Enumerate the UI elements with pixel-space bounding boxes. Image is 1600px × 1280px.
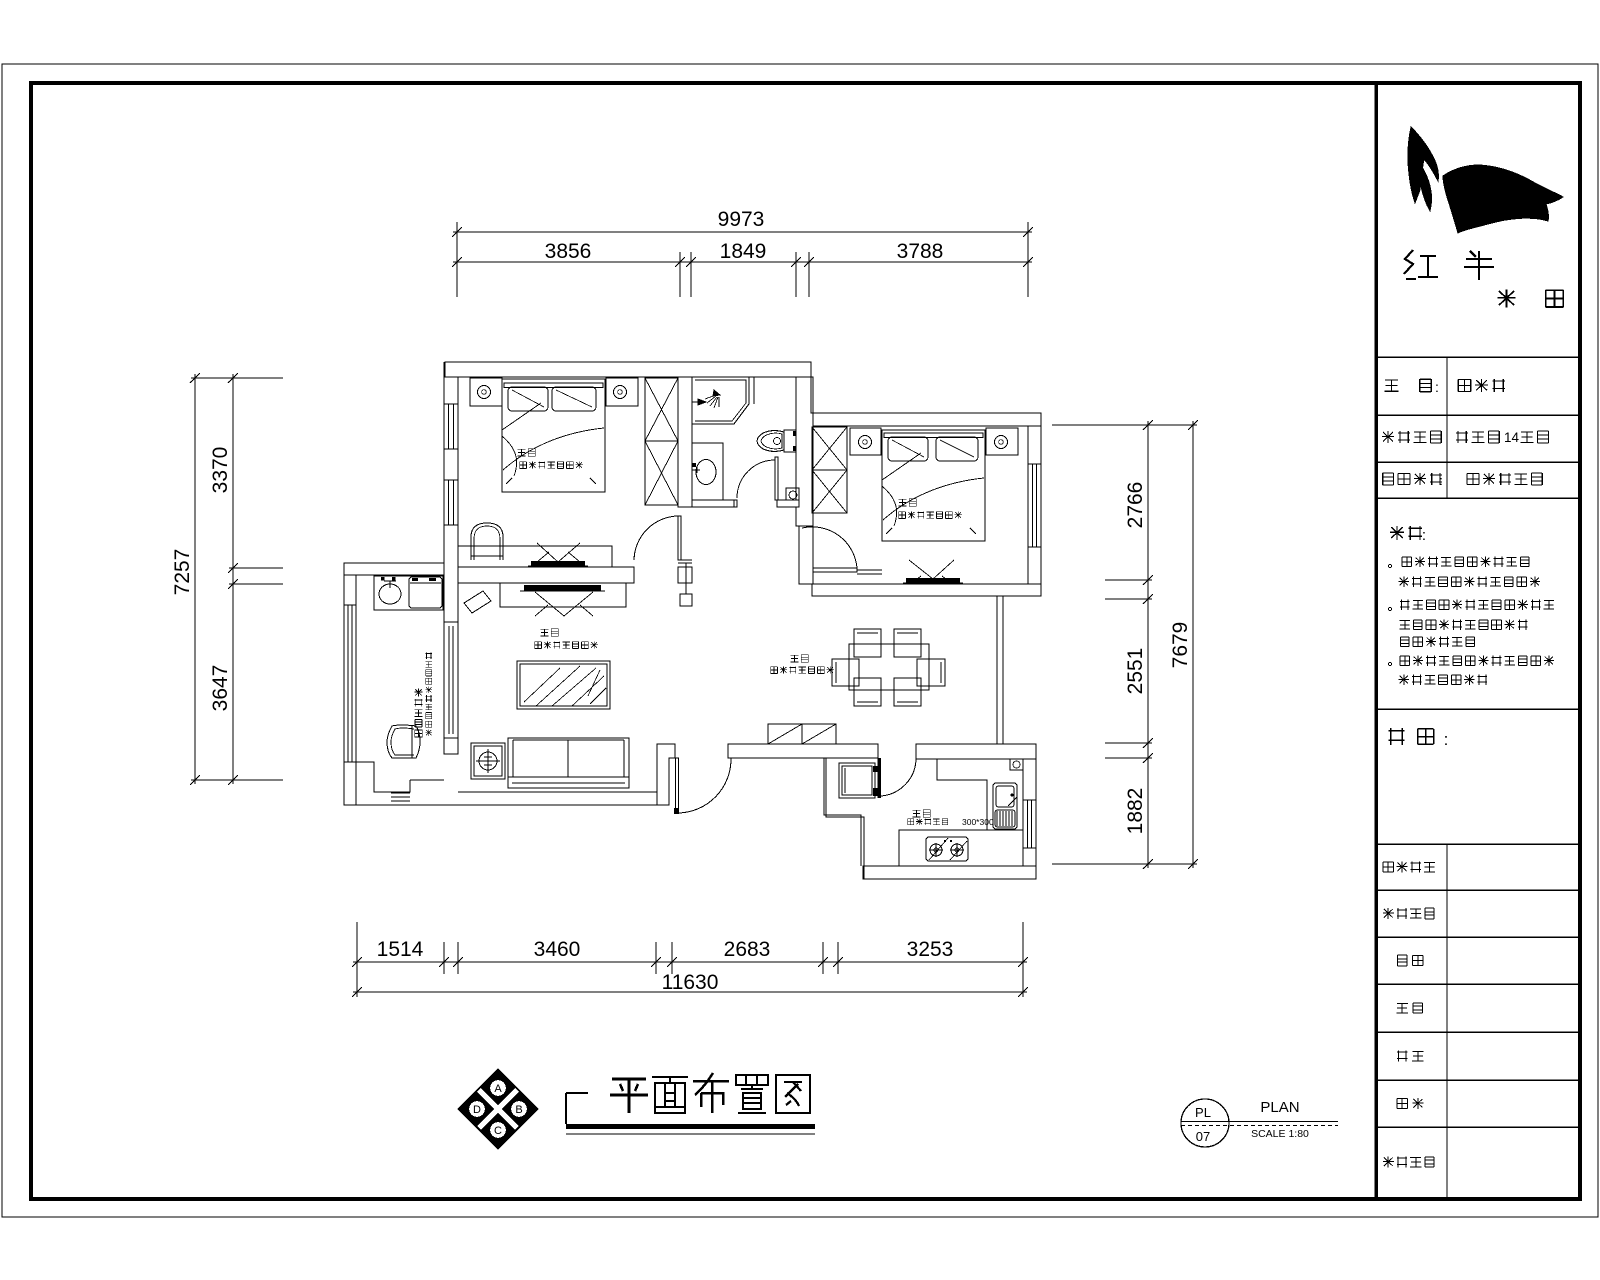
svg-text:7679: 7679 [1169, 622, 1192, 669]
svg-text:2683: 2683 [724, 938, 771, 961]
svg-text:1514: 1514 [377, 938, 424, 961]
svg-text:D: D [473, 1104, 481, 1116]
svg-text::: : [1435, 379, 1439, 395]
svg-text:B: B [515, 1104, 522, 1116]
svg-text:14: 14 [1504, 430, 1520, 445]
svg-text:300*300: 300*300 [962, 817, 994, 827]
svg-text:2766: 2766 [1124, 482, 1147, 529]
svg-text:3253: 3253 [907, 938, 954, 961]
svg-text:07: 07 [1196, 1129, 1210, 1144]
svg-text::: : [1439, 431, 1443, 446]
svg-text:11630: 11630 [662, 971, 719, 994]
svg-text::: : [1439, 473, 1443, 488]
svg-text::: : [1444, 730, 1449, 749]
svg-text:SCALE 1:80: SCALE 1:80 [1251, 1128, 1309, 1140]
svg-text:A: A [494, 1083, 502, 1095]
svg-text:9973: 9973 [718, 208, 765, 231]
svg-text:PLAN: PLAN [1260, 1099, 1299, 1116]
svg-text:C: C [494, 1125, 502, 1137]
svg-text:1849: 1849 [720, 240, 767, 263]
svg-text:3856: 3856 [545, 240, 592, 263]
svg-text:7257: 7257 [171, 549, 194, 596]
svg-text:3370: 3370 [209, 447, 232, 494]
svg-text:3460: 3460 [534, 938, 581, 961]
svg-text:2551: 2551 [1124, 648, 1147, 695]
svg-text::: : [1422, 527, 1426, 544]
svg-text:3647: 3647 [209, 665, 232, 712]
svg-text:3788: 3788 [897, 240, 944, 263]
svg-text:1882: 1882 [1124, 788, 1147, 835]
svg-text:PL: PL [1195, 1105, 1211, 1120]
